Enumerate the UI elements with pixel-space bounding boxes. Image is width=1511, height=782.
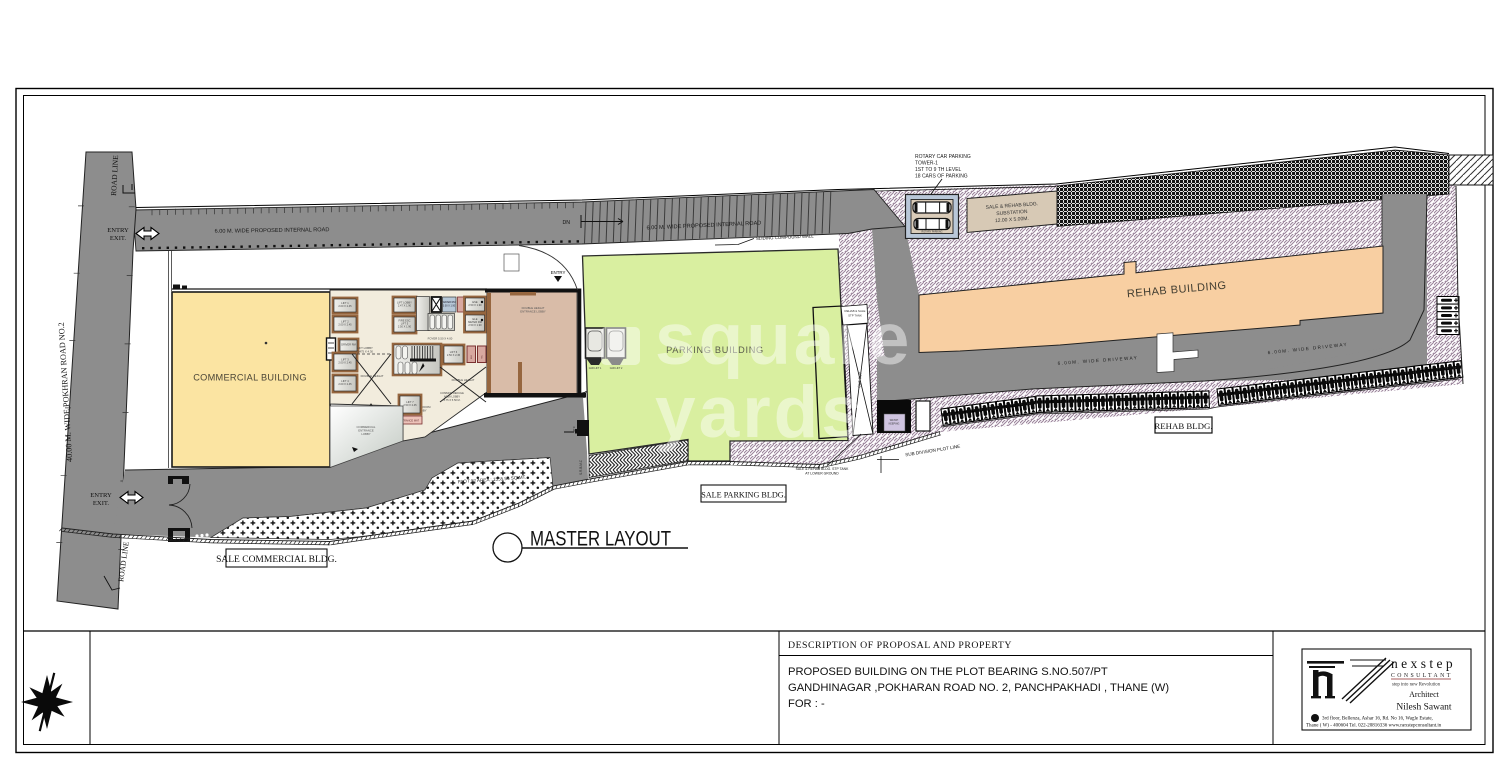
svg-text:COMMERCIAL BUILDING: COMMERCIAL BUILDING [193,373,307,383]
svg-text:3rd floor, Bellenza, Ashar 16,: 3rd floor, Bellenza, Ashar 16, Rd. No 16… [1322,717,1433,722]
svg-text:ENTRY: ENTRY [551,270,566,275]
svg-text:square: square [655,299,912,380]
svg-text:FOR : -: FOR : - [788,698,825,710]
svg-text:DESCRIPTION OF PROPOSAL AND PR: DESCRIPTION OF PROPOSAL AND PROPERTY [788,640,1012,651]
svg-text:18 CARS OF PARKING: 18 CARS OF PARKING [915,174,968,180]
svg-text:CAR LIFT 2: CAR LIFT 2 [610,367,623,370]
svg-text:2.50 X 1.90: 2.50 X 1.90 [398,325,412,329]
svg-text:yards: yards [655,372,865,453]
svg-text:MASTER LAYOUT: MASTER LAYOUT [530,528,671,551]
svg-text:EXIT.: EXIT. [93,500,110,507]
svg-text:ENTRY: ENTRY [90,492,112,499]
svg-text:2.00 X 2.45: 2.00 X 2.45 [338,304,352,308]
svg-text:DRIVER RM: DRIVER RM [341,343,356,347]
svg-text:SUB DIVISION PLOT LINE: SUB DIVISION PLOT LINE [905,444,961,458]
svg-text:ELE: ELE [471,354,473,359]
svg-text:2.00 X 2.45: 2.00 X 2.45 [338,323,352,327]
svg-text:CONSULTANT: CONSULTANT [1391,673,1453,679]
svg-text:FOYER 5.50 X 4.00: FOYER 5.50 X 4.00 [428,337,453,341]
svg-text:2.00 X 2.45: 2.00 X 2.45 [338,361,352,365]
svg-text:COMMON REFUGE: COMMON REFUGE [440,391,464,395]
svg-text:EXIT.: EXIT. [110,235,127,242]
svg-text:REHAB BLDG.: REHAB BLDG. [1154,421,1212,431]
svg-text:GANDHINAGAR ,POKHARAN ROAD NO.: GANDHINAGAR ,POKHARAN ROAD NO. 2, PANCHP… [788,682,1169,694]
svg-text:PROPOSED BUILDING ON THE PLOT: PROPOSED BUILDING ON THE PLOT BEARING S.… [788,666,1108,678]
svg-text:2.00 X 2.45: 2.00 X 2.45 [338,382,352,386]
svg-text:TOWER-1: TOWER-1 [915,161,938,167]
svg-text:DN: DN [563,220,571,226]
svg-text:2.50 X 1.90: 2.50 X 1.90 [468,323,482,327]
svg-text:3.00 X 1.90: 3.00 X 1.90 [443,305,456,308]
svg-text:2.47 X 1.90: 2.47 X 1.90 [398,304,412,308]
svg-text:S.R.B.M.C: S.R.B.M.C [579,459,583,475]
svg-text:AREA LOBBY: AREA LOBBY [444,395,461,399]
svg-text:LOBBY: LOBBY [361,432,370,436]
svg-text:SALE COMMERCIAL BLDG.: SALE COMMERCIAL BLDG. [216,555,337,565]
svg-text:8.75 X 5.50 M.: 8.75 X 5.50 M. [444,398,461,402]
svg-text:1ST TO 9 TH LEVEL: 1ST TO 9 TH LEVEL [915,167,962,173]
svg-text:MTR: MTR [572,426,576,432]
svg-text:Architect: Architect [1409,690,1440,699]
svg-text:ENTRY: ENTRY [107,227,129,234]
svg-text:nexstep: nexstep [1391,656,1456,671]
svg-text:DOUBLE HEIGHT: DOUBLE HEIGHT [452,378,475,382]
svg-text:2.50 X 2.45: 2.50 X 2.45 [447,353,461,357]
svg-text:ROTARY CAR PARKING: ROTARY CAR PARKING [915,154,971,160]
svg-text:step into new Revolution: step into new Revolution [1392,683,1441,688]
svg-text:Nilesh Sawant: Nilesh Sawant [1396,703,1452,713]
svg-text:AT LOWER GROUND: AT LOWER GROUND [805,472,839,476]
svg-text:DOUBLE HEIGHT: DOUBLE HEIGHT [361,374,384,378]
svg-text:SALE PARKING BLDG.: SALE PARKING BLDG. [701,491,786,500]
svg-text:2.50 X 2.45: 2.50 X 2.45 [403,403,417,407]
svg-text:2.50 X 1.90: 2.50 X 1.90 [468,303,482,307]
svg-text:KEEPING: KEEPING [889,423,900,426]
svg-text:Thane ( W) - 400604 Tel. 022-2: Thane ( W) - 400604 Tel. 022-20816336 ww… [1306,724,1442,729]
svg-text:ENTRANCE LOBBY: ENTRANCE LOBBY [520,310,546,314]
svg-text:SALE & REHAB BLDG. STP TANK: SALE & REHAB BLDG. STP TANK [796,467,849,471]
svg-text:5.475 X 4.30: 5.475 X 4.30 [357,350,373,354]
svg-text:CAR LIFT 1: CAR LIFT 1 [589,367,602,370]
svg-text:ROTARY PARKING: ROTARY PARKING [922,231,943,234]
